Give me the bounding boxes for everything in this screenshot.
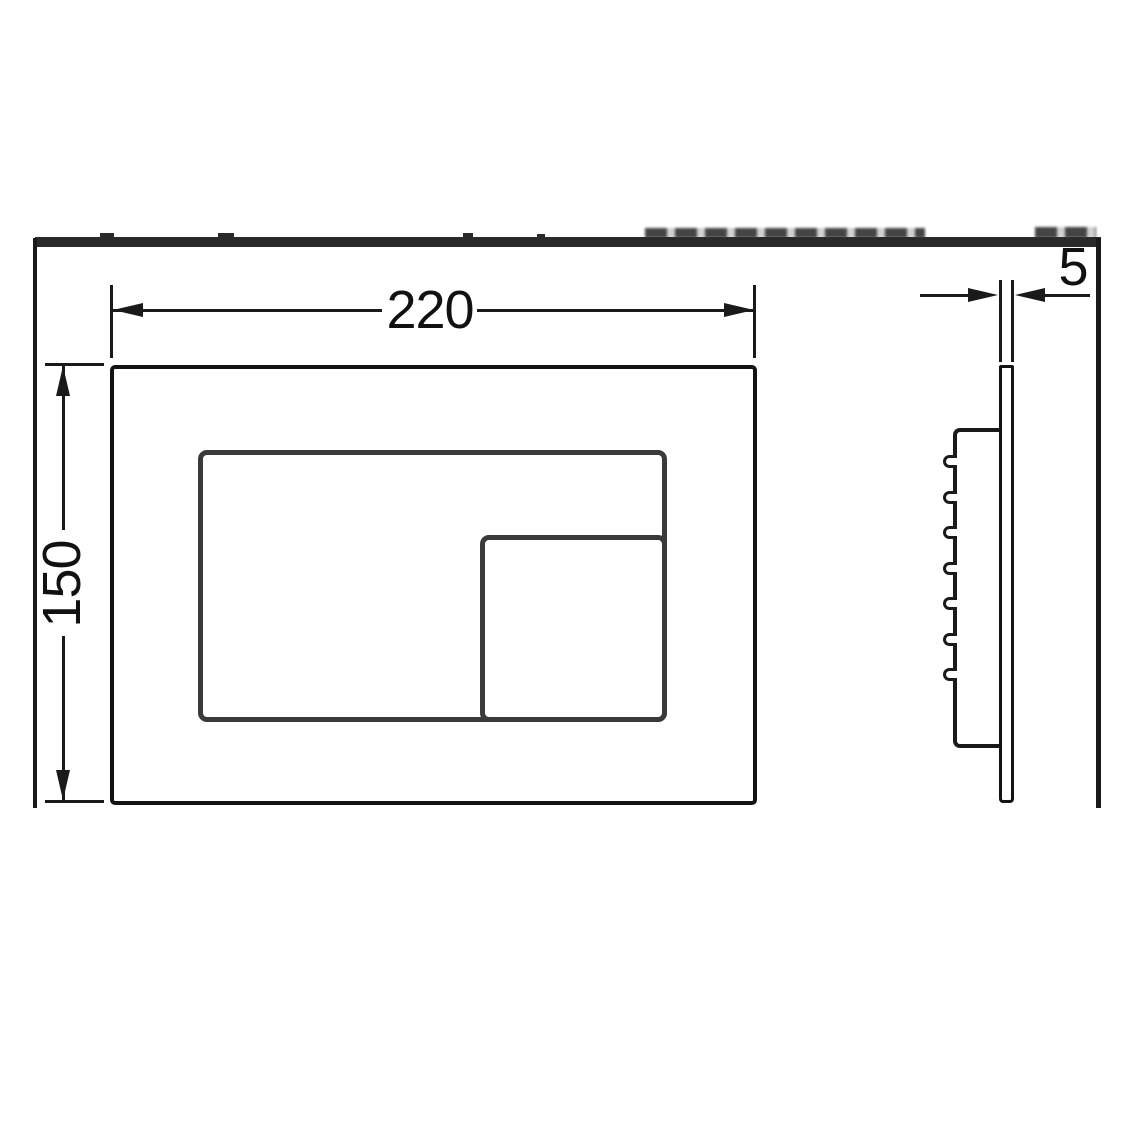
mounting-clip	[943, 491, 957, 504]
extension-line	[1011, 280, 1014, 362]
thickness-dimension-label: 5	[1052, 241, 1094, 293]
dimension-line	[113, 309, 382, 312]
arrowhead-left-icon	[113, 303, 143, 317]
arrowhead-right-icon	[968, 288, 998, 302]
extension-line	[45, 800, 104, 803]
clipped-mark	[537, 234, 545, 238]
clipped-mark	[100, 233, 114, 238]
mounting-clip	[943, 668, 957, 681]
clipped-mark	[218, 233, 234, 238]
header-strip	[35, 237, 1101, 247]
mounting-frame	[953, 428, 999, 748]
width-dimension-label: 220	[382, 284, 478, 336]
technical-drawing-canvas: 220 150 5	[0, 0, 1134, 1134]
mounting-clip	[943, 597, 957, 610]
extension-line	[753, 285, 756, 358]
frame-border-right	[1096, 238, 1101, 808]
mounting-clip	[943, 455, 957, 468]
clipped-text-fragment	[645, 228, 925, 238]
arrowhead-up-icon	[56, 366, 70, 396]
mounting-clip	[943, 562, 957, 575]
small-flush-button	[480, 535, 667, 722]
arrowhead-right-icon	[724, 303, 754, 317]
mounting-clip	[943, 526, 957, 539]
frame-border-left	[33, 238, 37, 808]
extension-line	[999, 280, 1002, 362]
extension-line	[45, 363, 104, 366]
height-dimension-label: 150	[36, 524, 90, 644]
side-plate-profile	[999, 365, 1014, 803]
extension-line	[110, 285, 113, 358]
arrowhead-left-icon	[1015, 288, 1045, 302]
dimension-line	[920, 294, 972, 297]
mounting-clip	[943, 633, 957, 646]
arrowhead-down-icon	[56, 770, 70, 800]
dimension-line	[477, 309, 754, 312]
clipped-mark	[463, 233, 473, 238]
